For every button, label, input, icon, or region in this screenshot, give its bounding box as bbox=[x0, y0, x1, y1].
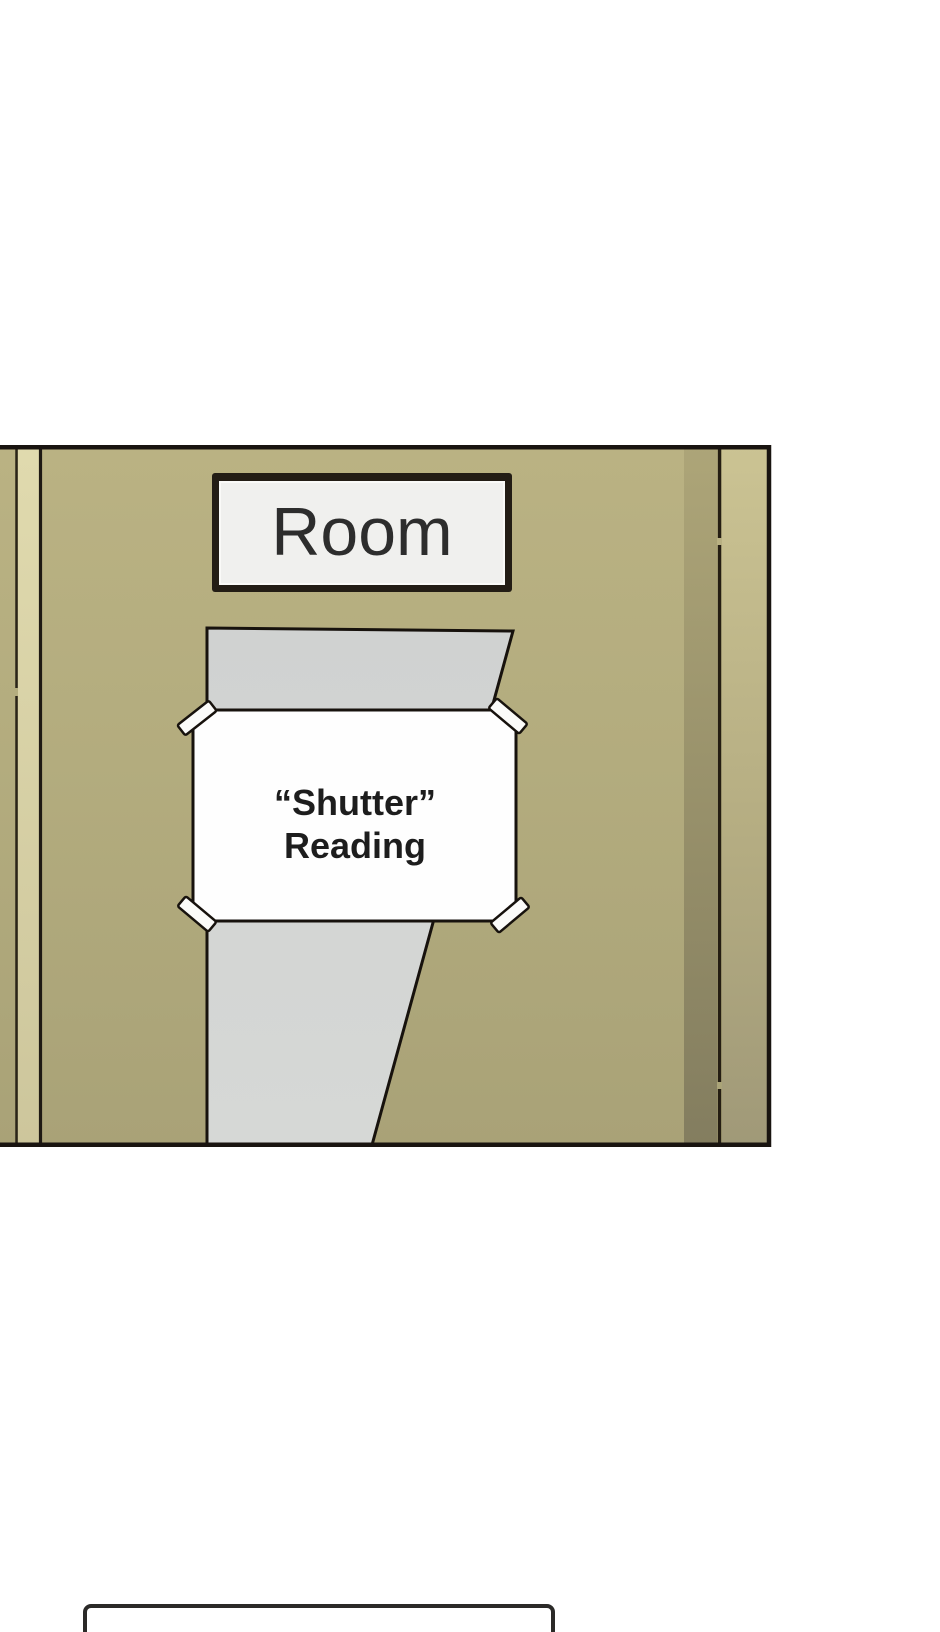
door-frame-strip-right bbox=[722, 445, 767, 1147]
door-frame-strip-left bbox=[18, 445, 39, 1147]
next-panel-edge bbox=[83, 1604, 555, 1632]
notice-paper-group: “Shutter” Reading bbox=[177, 698, 529, 933]
comic-page: Room “Shutter” Reading bbox=[0, 0, 940, 1632]
notice-line-2: Reading bbox=[284, 825, 426, 866]
door-edge-shade-right bbox=[684, 445, 717, 1147]
comic-panel-door-scene: Room “Shutter” Reading bbox=[0, 445, 775, 1147]
door-name-plate: Room bbox=[212, 473, 512, 592]
name-plate-text: Room bbox=[271, 494, 452, 570]
notice-line-1: “Shutter” bbox=[274, 782, 436, 823]
